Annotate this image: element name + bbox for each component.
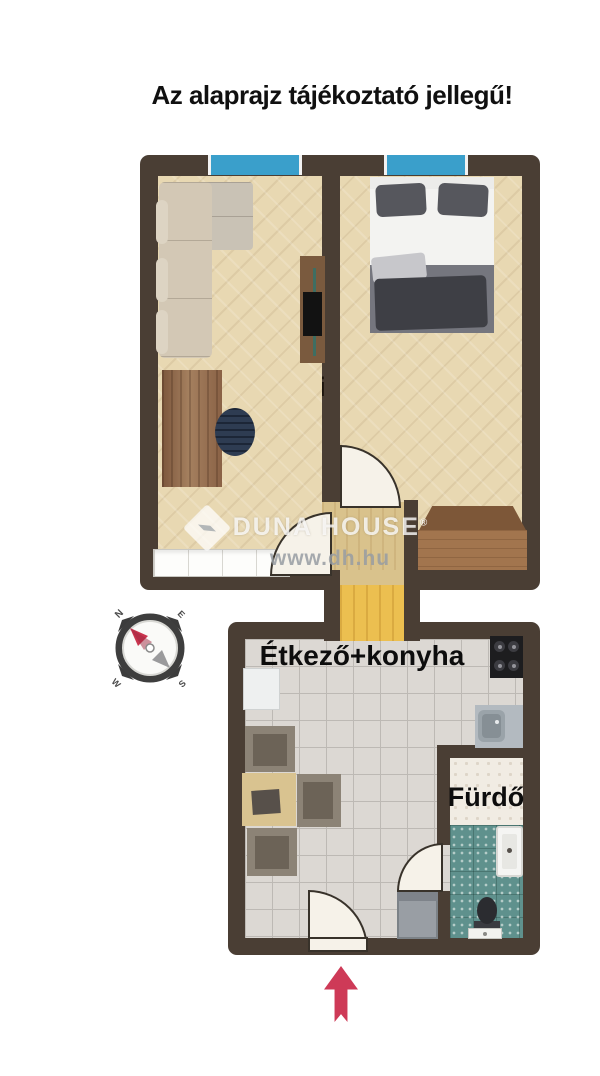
window-icon-living [208,155,302,175]
page-title: Az alaprajz tájékoztató jellegű! [62,80,600,111]
compass-rose-icon: N E W S [106,604,194,692]
washing-machine [397,891,438,939]
toilet [477,897,497,924]
registered-mark: ® [420,518,429,529]
sofa-armrest [156,200,168,244]
entrance-arrow-icon [324,966,358,1022]
compass-east-label: E [176,609,187,620]
bathtub [496,826,523,877]
table-item [251,789,281,815]
bathroom-faucet [483,932,487,936]
stove-cooktop [490,636,523,678]
bed-pillow [437,183,489,218]
desk-chair [215,408,255,456]
door-entry-leaf [308,937,368,952]
watermark-brand: DUNA HOUSE® [200,513,462,542]
floor-plan-page: Az alaprajz tájékoztató jellegű! [0,0,600,1076]
bathroom-wall [437,891,450,938]
compass-north-label: N [113,608,126,621]
room-label-kitchen: Étkező+konyha [248,640,476,672]
hall-wall [404,583,420,641]
armchair-seat [255,836,289,869]
bathroom-sink [468,928,502,939]
double-bed [370,177,494,333]
fridge [243,668,280,710]
armchair-seat [253,734,287,766]
window-icon-bedroom [384,155,468,175]
watermark-brand-text: DUNA HOUSE [233,513,420,541]
room-label-bathroom: Fürdő [442,782,530,813]
compass-south-label: S [177,678,188,689]
watermark-url: www.dh.hu [230,547,430,571]
sofa-armrest [156,310,168,354]
bed-throw [374,275,488,331]
kitchen-faucet [495,720,499,724]
bathtub-drain [507,848,512,853]
bed-pillow [375,183,427,218]
hall-wall [324,583,340,641]
kitchen-sink-basin [482,714,501,738]
hall-floor [340,585,404,641]
tv-screen [303,292,322,336]
armchair-seat [303,782,333,819]
sofa-armrest [156,258,168,302]
compass-west-label: W [110,677,123,690]
desk [162,370,222,487]
